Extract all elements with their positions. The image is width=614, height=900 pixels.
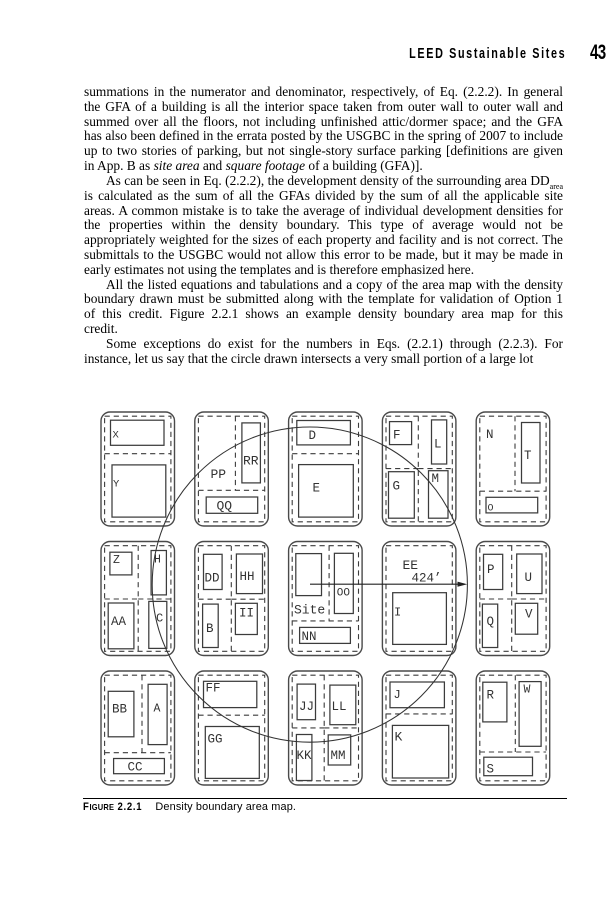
svg-text:GG: GG [208,733,223,747]
svg-text:I: I [394,606,401,620]
svg-text:MM: MM [331,749,346,763]
svg-text:A: A [154,703,161,716]
svg-text:R: R [487,689,495,703]
svg-text:K: K [395,730,403,745]
svg-text:DD: DD [205,572,220,586]
svg-text:Z: Z [113,554,120,567]
svg-text:B: B [206,622,214,636]
svg-text:II: II [239,607,254,621]
svg-text:CC: CC [128,761,143,775]
svg-text:P: P [487,563,495,577]
svg-text:QQ: QQ [217,499,233,514]
svg-text:RR: RR [243,454,259,469]
svg-text:Q: Q [487,615,495,629]
svg-text:X: X [113,430,120,442]
svg-text:O: O [488,504,494,515]
svg-text:NN: NN [302,630,317,644]
svg-text:U: U [525,571,533,585]
svg-text:E: E [313,482,321,496]
svg-text:F: F [393,429,401,443]
svg-text:LL: LL [332,700,347,714]
svg-text:BB: BB [112,703,128,717]
svg-text:N: N [486,428,494,442]
svg-text:KK: KK [297,749,313,763]
svg-text:M: M [432,472,440,486]
svg-text:FF: FF [206,682,221,696]
svg-text:OO: OO [337,588,351,600]
svg-text:Site: Site [294,603,325,618]
svg-text:JJ: JJ [299,700,314,714]
svg-text:HH: HH [240,570,255,584]
svg-text:Y: Y [113,479,120,491]
svg-text:V: V [525,608,533,622]
svg-text:G: G [393,480,401,494]
svg-text:AA: AA [111,615,127,629]
svg-text:W: W [524,684,531,697]
svg-text:D: D [309,429,317,443]
svg-text:PP: PP [211,467,227,482]
svg-text:L: L [434,438,442,452]
svg-text:424’: 424’ [412,572,442,586]
svg-text:T: T [524,449,532,463]
svg-text:J: J [394,688,401,702]
svg-text:S: S [487,763,495,777]
